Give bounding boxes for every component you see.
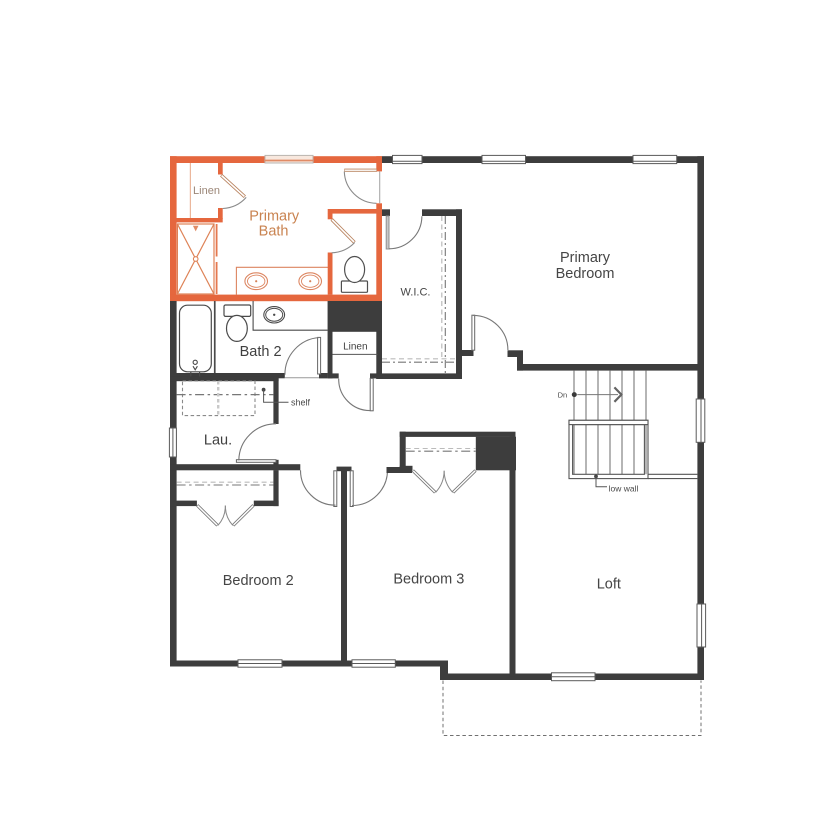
svg-text:Linen: Linen [193,185,220,197]
svg-text:Bedroom 2: Bedroom 2 [223,573,294,589]
svg-text:W.I.C.: W.I.C. [401,286,431,298]
svg-text:Linen: Linen [343,342,367,353]
svg-text:Bath 2: Bath 2 [240,344,282,360]
svg-text:Lau.: Lau. [204,432,232,448]
svg-text:Primary: Primary [560,250,611,266]
svg-text:Dn: Dn [558,391,568,400]
svg-text:Bedroom: Bedroom [556,266,615,282]
svg-text:Bath: Bath [259,224,289,240]
svg-text:Loft: Loft [597,577,621,593]
svg-text:shelf: shelf [291,398,311,408]
svg-text:low wall: low wall [609,484,639,494]
svg-text:Primary: Primary [249,209,300,225]
svg-text:Bedroom 3: Bedroom 3 [393,572,464,588]
